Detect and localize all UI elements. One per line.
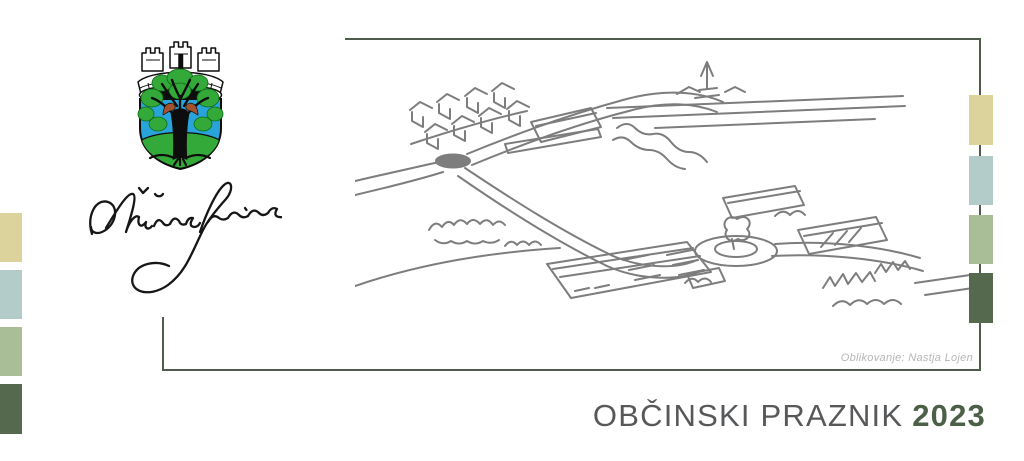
sketch-houses: [410, 83, 529, 149]
banner-canvas: Oblikovanje: Nastja Lojen OBČINSKI PRAZN…: [0, 0, 1024, 461]
sketch-buildings: [505, 108, 887, 298]
event-title: OBČINSKI PRAZNIK2023: [593, 398, 986, 434]
town-sketch-illustration: [355, 48, 975, 366]
obcina-sevnica-signature: [82, 170, 282, 305]
palette-square-left-light-blue: [0, 270, 22, 319]
event-title-year: 2023: [912, 398, 986, 433]
artwork-credit: Oblikovanje: Nastja Lojen: [841, 352, 973, 364]
palette-square-left-sage: [0, 327, 22, 376]
sketch-trees: [429, 211, 910, 306]
event-title-text: OBČINSKI PRAZNIK: [593, 398, 903, 433]
palette-square-right-light-blue: [969, 156, 993, 205]
frame-left-short-line: [162, 317, 164, 371]
palette-square-right-tan: [969, 95, 993, 145]
frame-bottom-line: [162, 369, 981, 371]
palette-square-left-dark-green: [0, 384, 22, 434]
sketch-distant-roads: [607, 96, 905, 169]
sevnica-coat-of-arms-icon: [128, 36, 233, 172]
palette-square-right-sage: [969, 215, 993, 264]
crown-slit: [179, 55, 183, 69]
palette-square-right-dark-green: [969, 273, 993, 323]
palette-square-left-tan: [0, 213, 22, 262]
sketch-roundabouts: [436, 155, 777, 267]
frame-top-line: [345, 38, 981, 40]
